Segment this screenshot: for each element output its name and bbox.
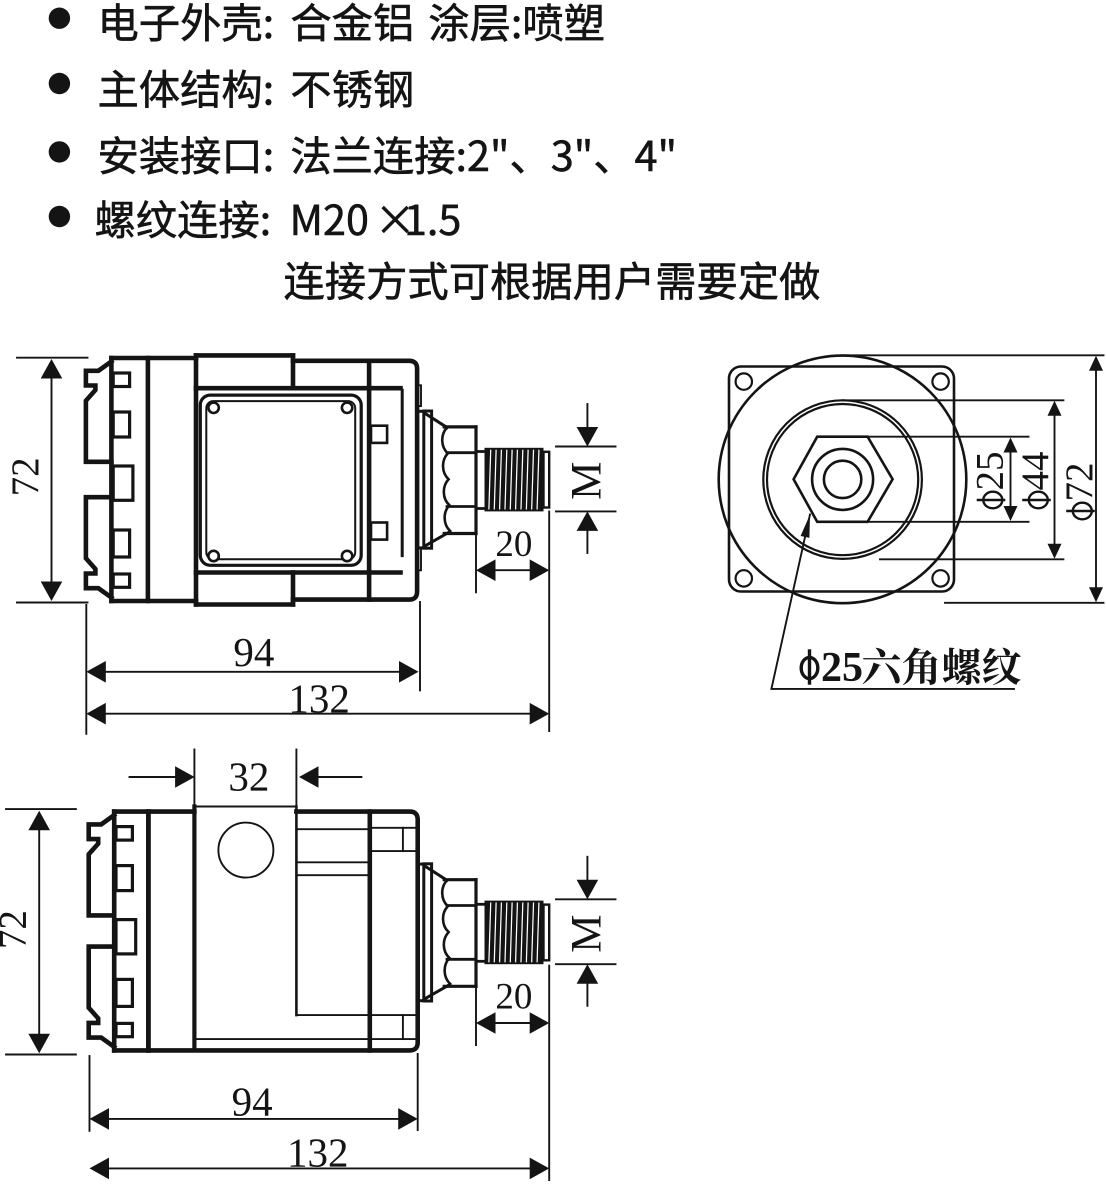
svg-text:44: 44	[1014, 452, 1057, 491]
svg-text:M: M	[563, 914, 610, 952]
svg-text:32: 32	[228, 754, 269, 800]
svg-text:20: 20	[495, 977, 532, 1018]
svg-text:20: 20	[495, 524, 532, 565]
svg-text:132: 132	[287, 1130, 349, 1176]
svg-text:132: 132	[288, 676, 350, 722]
svg-text:72: 72	[4, 457, 47, 496]
svg-text:25: 25	[969, 452, 1012, 491]
svg-text:94: 94	[233, 629, 274, 675]
svg-text:25: 25	[821, 645, 863, 691]
svg-text:M: M	[563, 462, 610, 500]
svg-text:72: 72	[1058, 463, 1101, 502]
svg-text:72: 72	[0, 910, 35, 949]
svg-text:94: 94	[232, 1079, 273, 1125]
